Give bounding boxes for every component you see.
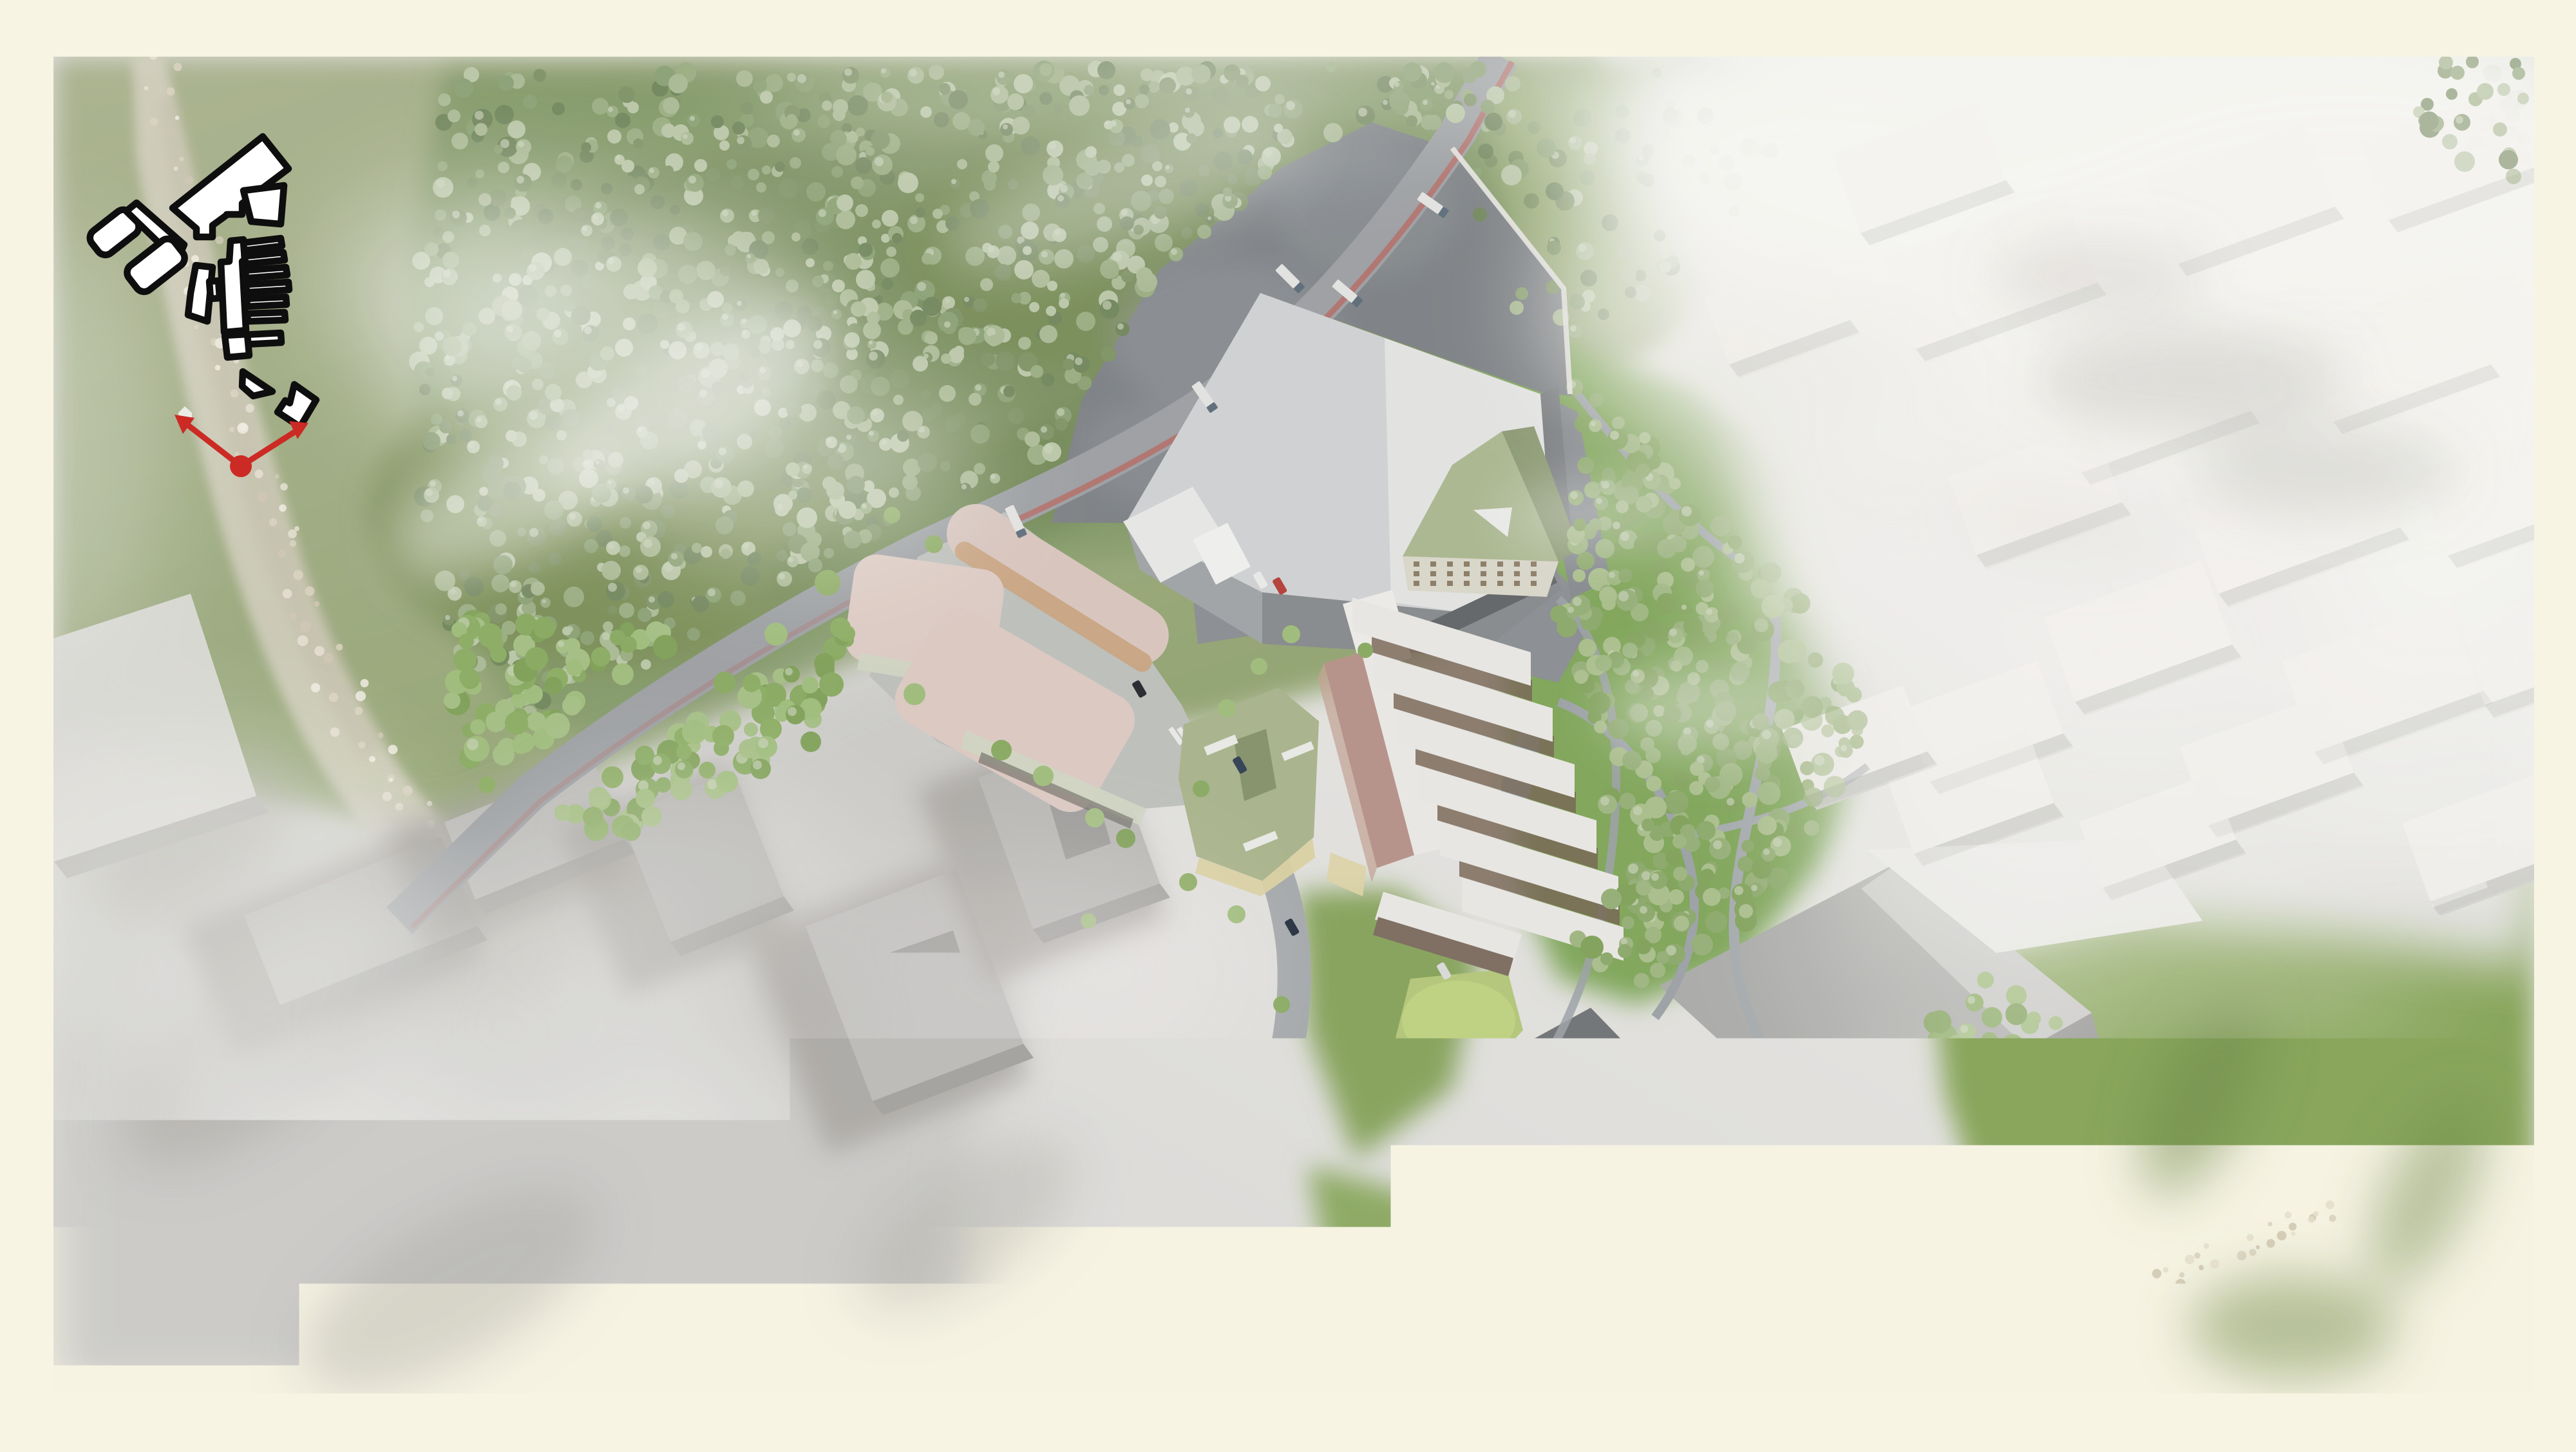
svg-text:Illustrasjon sett fra fulgeper: Illustrasjon sett fra fulgeperspektiv mo… [95, 1335, 627, 1368]
